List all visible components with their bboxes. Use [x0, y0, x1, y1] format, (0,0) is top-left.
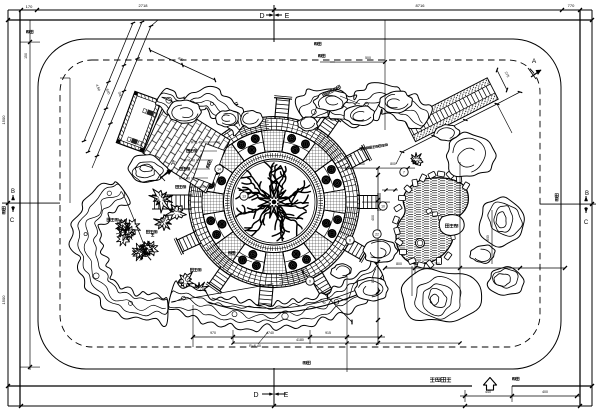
- svg-text:E: E: [284, 392, 289, 399]
- svg-text:13: 13: [242, 195, 246, 199]
- svg-text:800: 800: [390, 162, 396, 166]
- svg-text:915: 915: [325, 331, 331, 335]
- svg-text:800: 800: [486, 235, 490, 241]
- svg-text:4180: 4180: [296, 338, 304, 342]
- svg-text:A: A: [532, 58, 537, 65]
- svg-text:22: 22: [375, 233, 379, 237]
- svg-text:150: 150: [24, 53, 28, 59]
- svg-text:R=6.40: R=6.40: [191, 141, 202, 145]
- svg-text:1500: 1500: [1, 115, 6, 125]
- svg-text:700: 700: [434, 262, 440, 266]
- svg-text:500: 500: [365, 56, 371, 60]
- svg-text:900: 900: [359, 162, 365, 166]
- svg-text:400: 400: [542, 390, 548, 394]
- svg-text:770: 770: [568, 3, 575, 8]
- svg-text:C: C: [10, 218, 15, 224]
- svg-text:8: 8: [349, 239, 351, 243]
- svg-text:170: 170: [26, 4, 33, 9]
- svg-text:14: 14: [217, 168, 221, 172]
- svg-text:800: 800: [371, 277, 375, 283]
- svg-text:2718: 2718: [139, 3, 149, 8]
- svg-text:800: 800: [396, 262, 402, 266]
- svg-text:7: 7: [403, 171, 405, 175]
- svg-text:9: 9: [309, 280, 311, 284]
- svg-text:1500: 1500: [1, 295, 6, 305]
- svg-text:R=6.40: R=6.40: [179, 177, 190, 181]
- svg-text:8716: 8716: [416, 3, 426, 8]
- svg-text:A: A: [171, 160, 176, 167]
- svg-text:R=6.40: R=6.40: [249, 344, 261, 348]
- svg-text:D: D: [259, 13, 264, 20]
- svg-text:400: 400: [371, 215, 375, 221]
- svg-text:R=6.40: R=6.40: [184, 159, 195, 163]
- svg-text:10: 10: [381, 205, 385, 209]
- svg-text:C: C: [584, 220, 589, 226]
- svg-text:B: B: [11, 189, 15, 195]
- svg-text:970: 970: [210, 331, 216, 335]
- svg-text:E: E: [285, 13, 290, 20]
- svg-text:440: 440: [485, 390, 491, 394]
- svg-text:D: D: [253, 392, 258, 399]
